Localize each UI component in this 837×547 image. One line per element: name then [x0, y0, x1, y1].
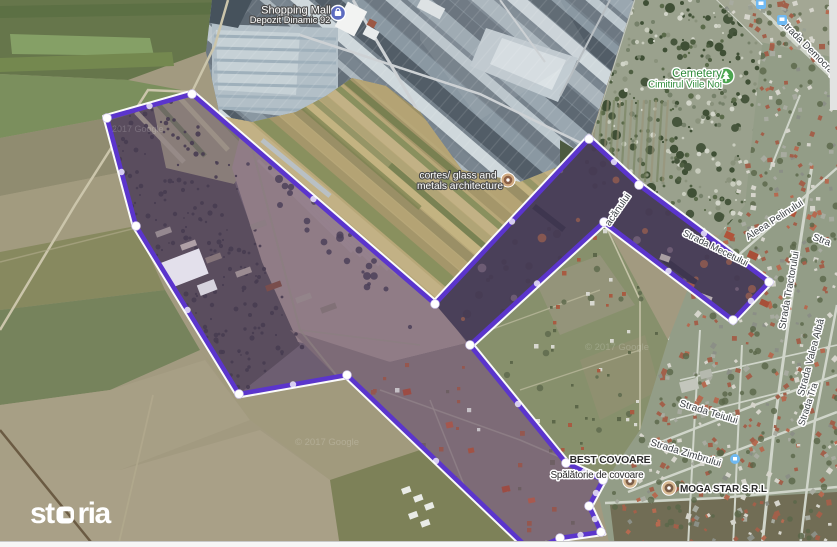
svg-text:ria: ria [78, 497, 112, 530]
svg-text:© 2017 Google: © 2017 Google [295, 437, 359, 448]
svg-text:© 2017 Google: © 2017 Google [585, 342, 649, 353]
svg-text:metals architecture: metals architecture [417, 181, 503, 192]
svg-text:cortes/ glass and: cortes/ glass and [419, 171, 496, 182]
svg-text:Cemetery: Cemetery [672, 68, 722, 80]
svg-text:MOGA STAR S.R.L: MOGA STAR S.R.L [680, 484, 767, 495]
svg-text:2017 Google: 2017 Google [112, 124, 164, 134]
svg-text:st: st [30, 497, 55, 530]
svg-text:Spălătorie de covoare: Spălătorie de covoare [550, 470, 644, 481]
svg-text:Depozit Dinamic 92: Depozit Dinamic 92 [250, 15, 331, 25]
svg-text:Cimitirul Viile Noi: Cimitirul Viile Noi [648, 80, 722, 91]
svg-text:BEST COVOARE: BEST COVOARE [570, 455, 651, 466]
